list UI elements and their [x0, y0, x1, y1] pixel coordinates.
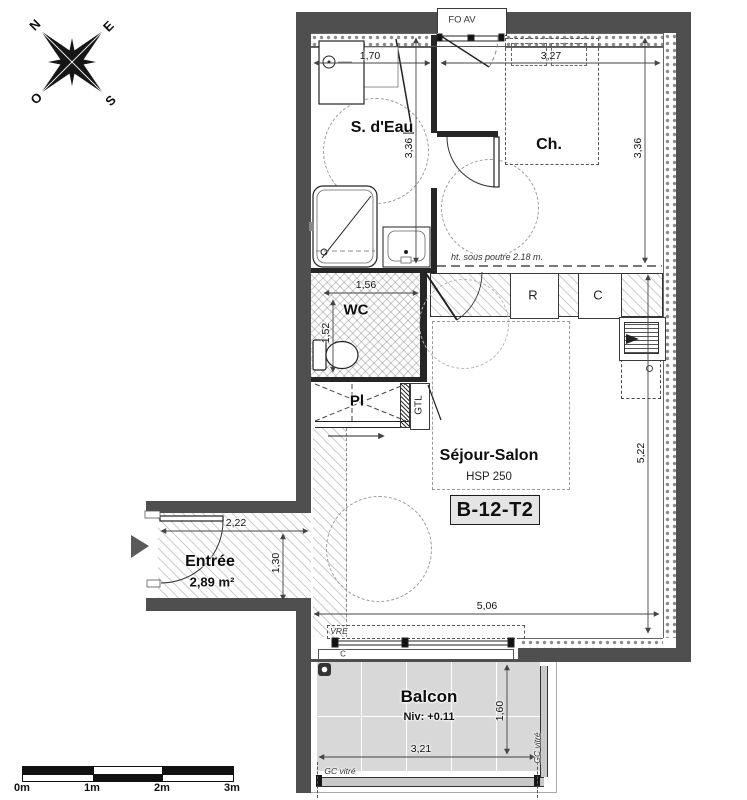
- toilet-icon: [313, 340, 358, 370]
- dim-sejour-h: 5,22: [635, 443, 647, 463]
- gtl-door-leaf: [428, 385, 441, 420]
- entrance-arrow-icon: [131, 535, 149, 558]
- dim-ch-h: 3,36: [632, 138, 644, 158]
- gc-right-label: GC vitré: [532, 732, 542, 763]
- vre-label: VRE: [330, 626, 347, 636]
- sejour-ceiling-label: HSP 250: [466, 471, 512, 483]
- unit-id-label: B-12-T2: [457, 499, 534, 522]
- room-label-sejour: Séjour-Salon: [440, 447, 539, 465]
- unit-id-box: B-12-T2: [450, 495, 540, 525]
- bathroom-sink-icon: [383, 227, 430, 267]
- scale-bar: 0m 1m 2m 3m: [22, 766, 232, 796]
- dim-wc-w: 1,56: [356, 279, 376, 291]
- dim-sdeau-h: 3,36: [403, 138, 415, 158]
- balcon-level-label: Niv: +0.11: [403, 711, 454, 723]
- kitchen-fridge-label: R: [528, 288, 537, 303]
- scale-bar-frame: [22, 766, 234, 782]
- shower-icon: [309, 186, 377, 267]
- dim-entree-w: 2,22: [226, 517, 246, 529]
- kitchen-faucet-icon: [626, 334, 639, 344]
- room-label-entree: Entrée: [185, 553, 235, 571]
- scale-2m: 2m: [154, 782, 170, 794]
- dim-wc-h: 1,52: [320, 323, 332, 343]
- washer-icon: [319, 41, 398, 104]
- scale-0m: 0m: [14, 782, 30, 794]
- compass-o: O: [27, 90, 45, 108]
- sdeau-door: [447, 137, 499, 187]
- dim-sdeau-w: 1,70: [360, 50, 380, 62]
- scale-1m: 1m: [84, 782, 100, 794]
- bay-window-label: C: [340, 650, 346, 659]
- compass-rose: N E S O: [0, 0, 155, 145]
- room-label-balcon: Balcon: [401, 687, 458, 707]
- dim-entree-h: 1,30: [270, 553, 282, 573]
- kitchen-cooking-label: C: [593, 288, 602, 303]
- entree-area-label: 2,89 m²: [190, 575, 235, 590]
- room-label-gtl: GTL: [414, 395, 425, 414]
- dim-ch-w: 3,27: [541, 50, 561, 62]
- dim-balcon-w: 3,21: [411, 743, 431, 755]
- room-label-sdeau: S. d'Eau: [351, 119, 413, 137]
- fo-av-label: FO AV: [448, 15, 475, 26]
- wc-door: [425, 272, 482, 320]
- bay-window-glazing: [332, 638, 514, 647]
- room-label-wc: WC: [344, 302, 369, 319]
- scale-3m: 3m: [224, 782, 240, 794]
- room-label-pl: Pl: [350, 393, 364, 410]
- dim-balcon-h: 1,60: [494, 701, 506, 721]
- compass-e: E: [100, 18, 117, 35]
- dim-sejour-w: 5,06: [477, 600, 497, 612]
- compass-s: S: [102, 92, 119, 109]
- gc-bottom-label: GC vitré: [324, 766, 355, 776]
- room-label-ch: Ch.: [536, 136, 562, 154]
- floor-plan: N E S O FO AV S. d'Eau Ch. WC Pl GTL Séj…: [0, 0, 747, 800]
- beam-note-label: ht. sous poutre 2.18 m.: [451, 252, 543, 262]
